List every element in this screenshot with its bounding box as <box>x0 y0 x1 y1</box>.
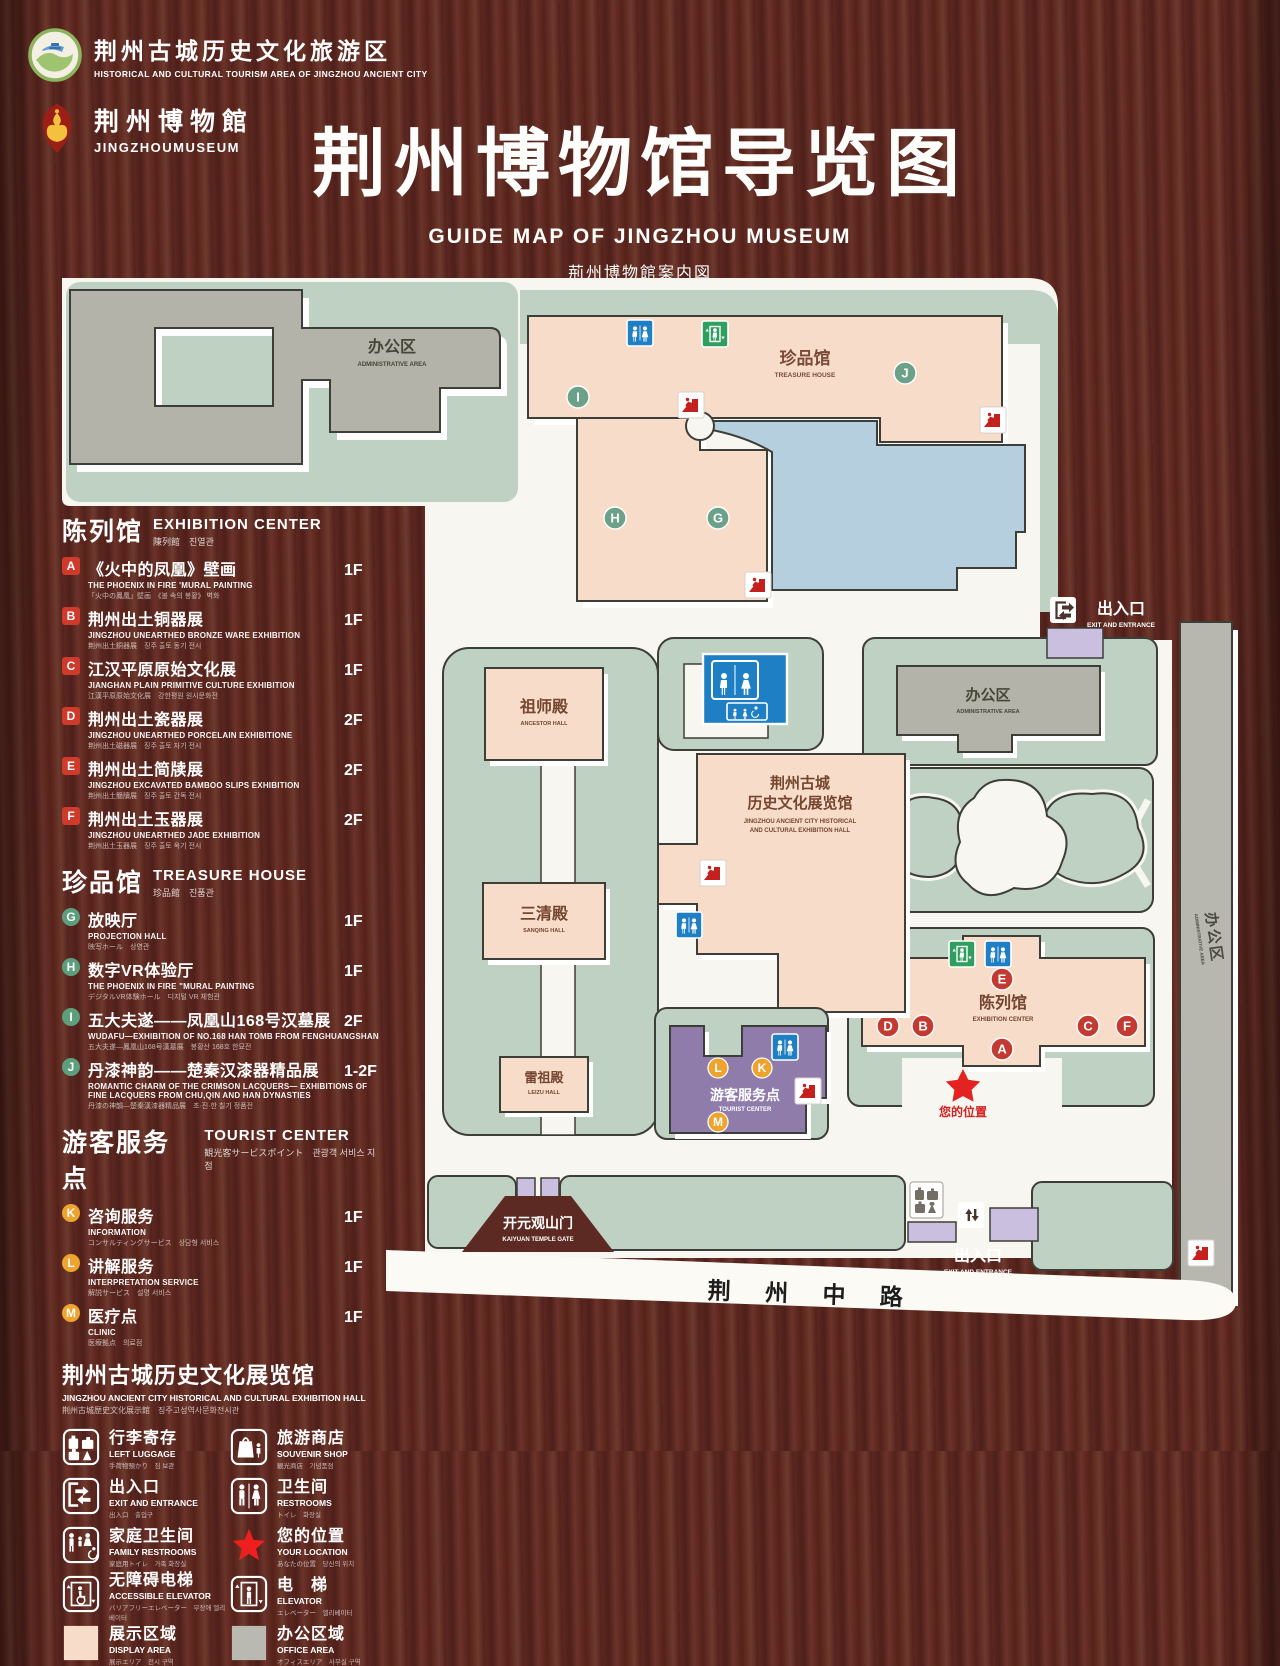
badge-b: B <box>62 607 80 625</box>
exit-bottom-label: 出入口 <box>954 1246 1002 1265</box>
badge-d: D <box>62 707 80 725</box>
legend-restrooms: 卫生间RESTROOMSトイレ 화장실 <box>230 1475 380 1517</box>
marker-F: F <box>1116 1015 1138 1037</box>
elevator-icon <box>230 1575 268 1613</box>
badge-a: A <box>62 557 80 575</box>
green-bottom-right <box>1032 1182 1173 1270</box>
badge-m: M <box>62 1304 80 1322</box>
left-luggage-icon <box>62 1428 100 1466</box>
marker-J: J <box>894 362 916 384</box>
tourist-center-label: 游客服务点 <box>710 1087 780 1103</box>
tourist-center-label-en: TOURIST CENTER <box>719 1107 772 1113</box>
history-hall-label-2: 历史文化展览馆 <box>747 794 852 812</box>
treasure-house-label: 珍品馆 <box>780 348 831 368</box>
escalator-icon <box>980 407 1006 433</box>
svg-text:L: L <box>714 1061 721 1075</box>
guide-map-poster: { "header": { "logo_tourism": {"name":"荆… <box>0 0 1280 1451</box>
tourism-logo-subtitle: HISTORICAL AND CULTURAL TOURISM AREA OF … <box>94 69 428 79</box>
legend-item-l: L 讲解服务1F INTERPRETATION SERVICE解説サービス 설명… <box>62 1253 380 1298</box>
temple-courtyards: 祖师殿 ANCESTOR HALL 三清殿 SANQING HALL 雷祖殿 L… <box>443 648 658 1135</box>
history-hall-label-en-1: JINGZHOU ANCIENT CITY HISTORICAL <box>744 819 857 825</box>
ancestor-hall-label-en: ANCESTOR HALL <box>521 721 569 727</box>
kaiyuan-gate-label: 开元观山门 <box>503 1215 573 1231</box>
badge-k: K <box>62 1204 80 1222</box>
section-title: 游客服务点 <box>62 1123 194 1195</box>
history-hall-label-en-2: AND CULTURAL EXHIBITION HALL <box>750 828 851 834</box>
leizu-hall-label: 雷祖殿 <box>524 1070 564 1085</box>
escalator-icon <box>700 860 726 886</box>
legend-section-exhibition-center: 陈列馆 EXHIBITION CENTER 陳列館 진열관 <box>62 512 380 548</box>
leizu-hall-label-en: LEIZU HALL <box>528 1090 561 1096</box>
legend-item-f: F 荆州出土玉器展2F JINGZHOU UNEARTHED JADE EXHI… <box>62 806 380 851</box>
restroom-icon <box>676 912 702 938</box>
badge-i: I <box>62 1008 80 1026</box>
escalator-icon <box>745 572 771 598</box>
legend-item-h: H 数字VR体验厅1F THE PHOENIX IN FIRE "MURAL P… <box>62 957 380 1002</box>
escalator-icon <box>795 1078 821 1104</box>
your-location-star-icon <box>230 1526 268 1564</box>
legend-item-a: A 《火中的凤凰》壁画1F THE PHOENIX IN FIRE 'MURAL… <box>62 556 380 601</box>
museum-logo-icon <box>32 100 82 156</box>
your-location-label: 您的位置 <box>939 1104 987 1119</box>
legend-item-g: G 放映厅1F PROJECTION HALL映写ホール 상영관 <box>62 907 380 952</box>
ancestor-hall-label: 祖师殿 <box>519 697 569 716</box>
treasure-house-label-en: TREASURE HOUSE <box>775 372 836 379</box>
svg-text:J: J <box>901 366 908 381</box>
restroom-icon <box>627 320 653 346</box>
entrance-gate <box>1047 628 1103 658</box>
legend-item-j: J 丹漆神韵——楚秦汉漆器精品展1-2F ROMANTIC CHARM OF T… <box>62 1057 380 1111</box>
legend-icon-grid: 行李寄存LEFT LUGGAGE手荷物預かり 짐 보관 旅游商店SOUVENIR… <box>62 1426 380 1664</box>
history-hall-note: 荆州古城历史文化展览馆 JINGZHOU ANCIENT CITY HISTOR… <box>62 1358 380 1416</box>
restroom-sign-block <box>703 654 787 724</box>
svg-text:M: M <box>713 1115 723 1129</box>
exit-top-label: 出入口 <box>1097 599 1145 618</box>
legend-section-treasure-house: 珍品馆 TREASURE HOUSE 珍品館 진품관 <box>62 863 380 899</box>
legend-accessible-elevator: 无障碍电梯ACCESSIBLE ELEVATORバリアフリーエレベーター 무장애… <box>62 1573 230 1615</box>
legend-item-c: C 江汉平原原始文化展1F JIANGHAN PLAIN PRIMITIVE C… <box>62 656 380 701</box>
exit-icon <box>1050 597 1076 623</box>
tourism-logo-icon <box>28 28 82 82</box>
badge-c: C <box>62 657 80 675</box>
green-bottom-center <box>560 1176 905 1250</box>
marker-B: B <box>912 1015 934 1037</box>
souvenir-shop-icon <box>230 1428 268 1466</box>
escalator-icon <box>678 392 704 418</box>
history-hall-label-1: 荆州古城 <box>770 774 830 792</box>
building-treasure-house: 珍品馆 TREASURE HOUSE I J H G <box>528 316 1025 608</box>
section-title-sub: 陳列館 진열관 <box>153 535 322 548</box>
display-area-swatch <box>62 1624 100 1662</box>
legend-section-tourist-center: 游客服务点 TOURIST CENTER 観光客サービスポイント 관광객 서비스… <box>62 1123 380 1195</box>
section-title-en: EXHIBITION CENTER <box>153 516 322 533</box>
legend-office-area: 办公区域OFFICE AREAオフィスエリア 사무실 구역 <box>230 1622 380 1664</box>
legend-item-i: I 五大夫遂——凤凰山168号汉墓展2F WUDAFU—EXHIBITION O… <box>62 1007 380 1052</box>
svg-text:I: I <box>576 390 580 405</box>
section-title-sub: 観光客サービスポイント 관광객 서비스 지점 <box>204 1146 380 1172</box>
building-admin-strip: 办公区 ADMINISTRATIVE AREA <box>1180 622 1238 1306</box>
legend-exit-entrance: 出入口EXIT AND ENTRANCE出入口 출입구 <box>62 1475 230 1517</box>
svg-text:A: A <box>997 1042 1007 1057</box>
accessible-elevator-icon <box>62 1575 100 1613</box>
sanqing-hall-label: 三清殿 <box>520 905 569 923</box>
legend-display-area: 展示区域DISPLAY AREA展示エリア 전시 구역 <box>62 1622 230 1664</box>
marker-G: G <box>707 507 729 529</box>
entrance-gate <box>908 1222 956 1242</box>
kaiyuan-gate-label-en: KAIYUAN TEMPLE GATE <box>502 1237 573 1243</box>
office-area-swatch <box>230 1624 268 1662</box>
legend-your-location: 您的位置YOUR LOCATIONあなたの位置 당신의 위치 <box>230 1524 380 1566</box>
page-title: 荆州博物馆导览图 <box>230 104 1050 211</box>
section-title-sub: 珍品館 진품관 <box>153 886 307 899</box>
admin-top-label: 办公区 <box>368 337 416 356</box>
svg-text:C: C <box>1083 1019 1093 1034</box>
restrooms-icon <box>230 1477 268 1515</box>
tourism-area-logo: 荆州古城历史文化旅游区 HISTORICAL AND CULTURAL TOUR… <box>28 28 428 82</box>
exit-entrance-icon <box>62 1477 100 1515</box>
svg-text:F: F <box>1123 1019 1131 1034</box>
svg-text:D: D <box>883 1019 892 1034</box>
map-legend: 陈列馆 EXHIBITION CENTER 陳列館 진열관 A 《火中的凤凰》壁… <box>62 500 380 1664</box>
legend-family-restrooms: 家庭卫生间FAMILY RESTROOMS家庭用トイレ 가족 화장실 <box>62 1524 230 1566</box>
legend-elevator: 电 梯ELEVATORエレベーター 엘리베이터 <box>230 1573 380 1615</box>
page-title-en: GUIDE MAP OF JINGZHOU MUSEUM <box>230 225 1050 249</box>
restroom-icon <box>985 941 1011 967</box>
legend-item-d: D 荆州出土瓷器展2F JINGZHOU UNEARTHED PORCELAIN… <box>62 706 380 751</box>
elevator-icon <box>949 941 975 967</box>
marker-C: C <box>1077 1015 1099 1037</box>
museum-logo: 荆州博物館 JINGZHOUMUSEUM <box>32 100 254 156</box>
marker-D: D <box>877 1015 899 1037</box>
marker-M: M <box>708 1112 728 1132</box>
legend-item-b: B 荆州出土铜器展1F JINGZHOU UNEARTHED BRONZE WA… <box>62 606 380 651</box>
section-title-en: TREASURE HOUSE <box>153 867 307 884</box>
sanqing-hall-label-en: SANQING HALL <box>523 928 566 934</box>
restroom-icon <box>772 1034 798 1060</box>
marker-L: L <box>708 1058 728 1078</box>
section-title: 陈列馆 <box>62 512 143 548</box>
admin-right-label-en: ADMINISTRATIVE AREA <box>956 709 1019 715</box>
legend-item-k: K 咨询服务1F INFORMATIONコンサルティングサービス 상담형 서비스 <box>62 1203 380 1248</box>
badge-l: L <box>62 1254 80 1272</box>
legend-item-m: M 医疗点1F CLINIC医療拠点 의료점 <box>62 1303 380 1348</box>
svg-text:G: G <box>713 511 723 526</box>
building-tourist-center: L K M 游客服务点 TOURIST CENTER <box>655 1008 831 1139</box>
legend-item-e: E 荆州出土简牍展2F JINGZHOU EXCAVATED BAMBOO SL… <box>62 756 380 801</box>
svg-text:H: H <box>610 511 619 526</box>
badge-h: H <box>62 958 80 976</box>
badge-e: E <box>62 757 80 775</box>
section-title: 珍品馆 <box>62 863 143 899</box>
admin-right-label: 办公区 <box>965 686 1010 704</box>
marker-H: H <box>604 507 626 529</box>
exit-icon <box>958 1202 984 1228</box>
svg-text:E: E <box>998 972 1007 987</box>
elevator-icon <box>702 321 728 347</box>
marker-E: E <box>991 968 1013 990</box>
badge-g: G <box>62 908 80 926</box>
marker-A: A <box>991 1038 1013 1060</box>
admin-right-courtyard: 办公区 ADMINISTRATIVE AREA <box>863 638 1157 765</box>
entrance-gate <box>990 1208 1038 1241</box>
badge-j: J <box>62 1058 80 1076</box>
svg-text:K: K <box>758 1061 767 1075</box>
marker-I: I <box>567 386 589 408</box>
left-luggage-icon <box>910 1182 943 1218</box>
legend-left-luggage: 行李寄存LEFT LUGGAGE手荷物預かり 짐 보관 <box>62 1426 230 1468</box>
svg-text:B: B <box>918 1019 927 1034</box>
badge-f: F <box>62 807 80 825</box>
marker-K: K <box>752 1058 772 1078</box>
exhibition-center-label: 陈列馆 <box>979 993 1027 1012</box>
restroom-courtyard <box>658 638 823 750</box>
exhibition-center-label-en: EXHIBITION CENTER <box>973 1017 1034 1023</box>
admin-top-label-en: ADMINISTRATIVE AREA <box>358 362 428 368</box>
family-restrooms-icon <box>62 1526 100 1564</box>
escalator-icon <box>1188 1240 1214 1266</box>
section-title-en: TOURIST CENTER <box>204 1127 380 1144</box>
tourism-logo-title: 荆州古城历史文化旅游区 <box>94 32 428 66</box>
legend-souvenir-shop: 旅游商店SOUVENIR SHOP観光商店 기념품점 <box>230 1426 380 1468</box>
